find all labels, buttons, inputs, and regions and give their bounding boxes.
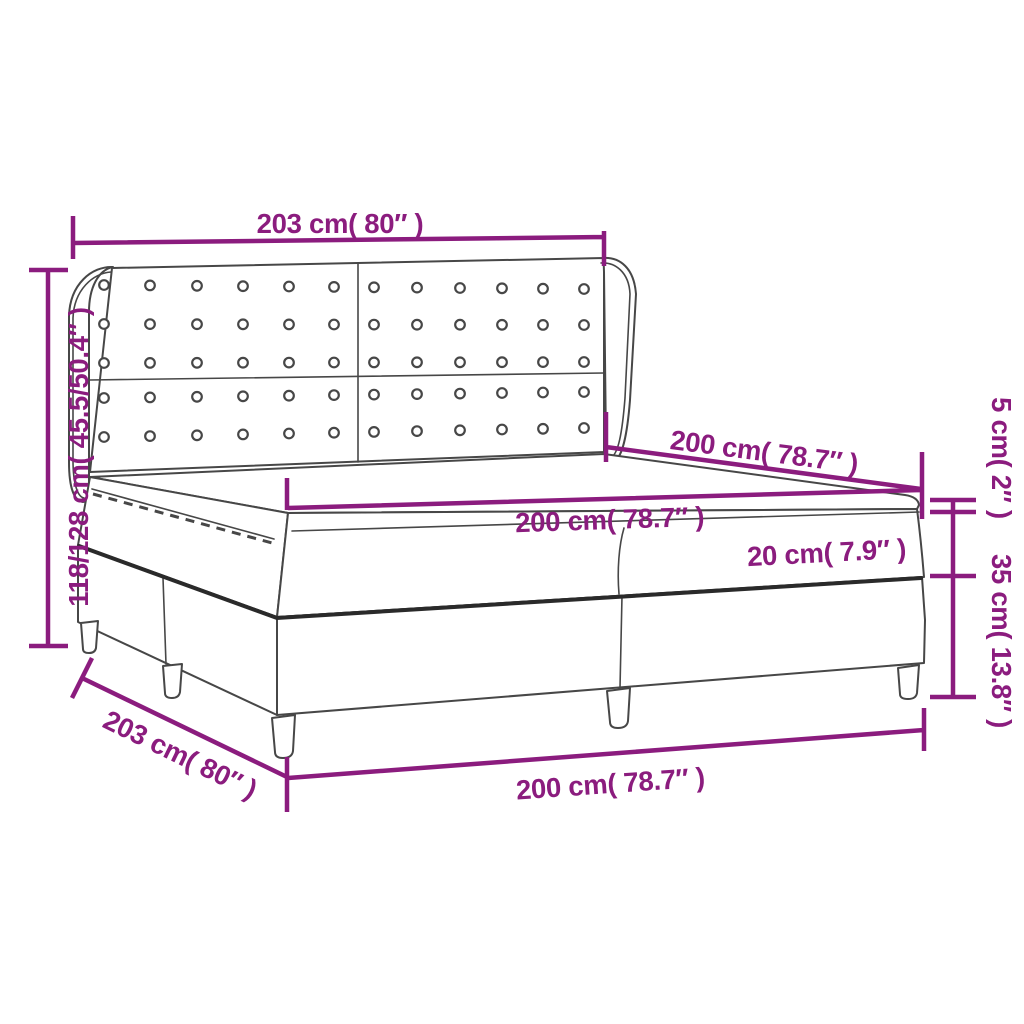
tufting-button: [284, 429, 294, 439]
tufting-button: [412, 358, 422, 368]
tufting-button: [284, 391, 294, 401]
tufting-button: [192, 392, 202, 402]
bed-leg-back-left: [81, 621, 98, 653]
tufting-button: [538, 320, 548, 330]
headboard-face: [90, 258, 604, 472]
tufting-button: [192, 319, 202, 329]
tufting-button: [145, 358, 155, 368]
tufting-button: [538, 388, 548, 398]
dim-label-topper-thickness: 5 cm( 2″ ): [986, 397, 1017, 519]
tufting-button: [99, 358, 109, 368]
tufting-button: [329, 282, 339, 292]
tufting-button: [329, 390, 339, 400]
tufting-button: [538, 424, 548, 434]
tufting-button: [99, 432, 109, 442]
dim-line-right-heights: [930, 499, 976, 697]
dim-label-frame-width-bottom: 200 cm( 78.7″ ): [515, 761, 706, 805]
tufting-button: [579, 423, 589, 433]
diagram-canvas: 203 cm( 80″ ) 118/128 cm( 45.5/50.4″ ) 2…: [0, 0, 1024, 1024]
dim-label-headboard-width: 203 cm( 80″ ): [257, 208, 424, 239]
tufting-button: [579, 320, 589, 330]
tufting-button: [192, 358, 202, 368]
dim-label-mattress-width: 200 cm( 78.7″ ): [515, 501, 705, 539]
tufting-button: [238, 358, 248, 368]
tufting-button: [99, 319, 109, 329]
tufting-button: [412, 389, 422, 399]
tufting-button: [412, 283, 422, 293]
tufting-button: [145, 281, 155, 291]
tufting-button: [369, 283, 379, 293]
tufting-button: [497, 388, 507, 398]
tufting-button: [369, 390, 379, 400]
tufting-button: [369, 427, 379, 437]
tufting-button: [192, 281, 202, 291]
tufting-button: [99, 393, 109, 403]
tufting-button: [238, 392, 248, 402]
tufting-button: [538, 284, 548, 294]
tufting-button: [145, 319, 155, 329]
tufting-button: [145, 393, 155, 403]
tufting-button: [369, 358, 379, 368]
tufting-button: [455, 358, 465, 368]
tufting-button: [284, 282, 294, 292]
tufting-button: [329, 358, 339, 368]
tufting-button: [192, 431, 202, 441]
tufting-button: [369, 320, 379, 330]
bed-leg-front-middle: [607, 688, 630, 728]
tufting-button: [579, 387, 589, 397]
tufting-button: [412, 426, 422, 436]
tufting-button: [238, 430, 248, 440]
tufting-button: [329, 428, 339, 438]
bed-dimension-diagram: 203 cm( 80″ ) 118/128 cm( 45.5/50.4″ ) 2…: [0, 0, 1024, 1024]
tufting-button: [284, 358, 294, 368]
tufting-button: [497, 320, 507, 330]
tufting-button: [497, 425, 507, 435]
tufting-button: [497, 284, 507, 294]
tufting-button: [145, 431, 155, 441]
tufting-button: [455, 426, 465, 436]
bed-leg-front-right: [898, 665, 919, 699]
tufting-button: [538, 357, 548, 367]
tufting-button: [238, 320, 248, 330]
tufting-button: [99, 280, 109, 290]
tufting-button: [497, 357, 507, 367]
tufting-button: [238, 281, 248, 291]
bed-illustration: [69, 258, 925, 758]
tufting-button: [455, 320, 465, 330]
tufting-button: [284, 320, 294, 330]
dim-label-base-height: 35 cm( 13.8″ ): [986, 554, 1017, 728]
dim-label-headboard-height: 118/128 cm( 45.5/50.4″ ): [63, 307, 94, 607]
tufting-button: [455, 389, 465, 399]
tufting-button: [329, 320, 339, 330]
tufting-button: [579, 284, 589, 294]
tufting-button: [455, 283, 465, 293]
bed-leg-front-corner: [272, 715, 295, 758]
tufting-button: [412, 320, 422, 330]
tufting-button: [579, 357, 589, 367]
bed-leg-side-middle: [163, 664, 182, 698]
